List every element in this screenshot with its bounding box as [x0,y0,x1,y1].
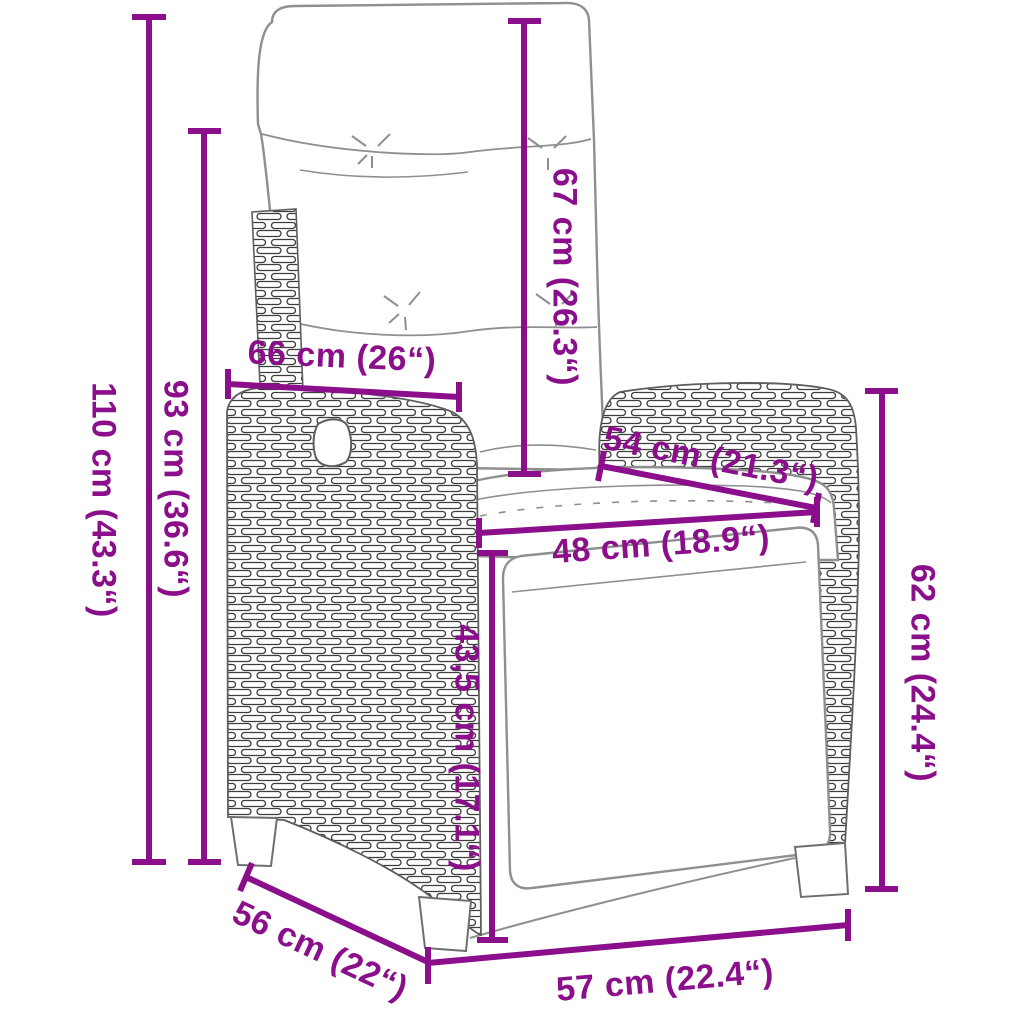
dimension-diagram: 110 cm (43.3“) 93 cm (36.6“) 66 cm (26“)… [0,0,1024,1024]
chair-illustration [0,0,1024,1024]
dim-label-cushion-back-height: 67 cm (26.3“) [545,168,584,386]
recline-handle [314,419,352,466]
footrest-panel-outline [503,528,830,889]
dim-label-backrest-height: 93 cm (36.6“) [156,380,195,598]
dim-label-armrest-height: 62 cm (24.4“) [903,564,942,782]
dim-label-seat-height: 43,5 cm (17.1“) [447,624,486,872]
dim-label-backrest-width: 66 cm (26“) [247,333,437,380]
front-right-foot [795,843,848,897]
rear-left-foot [231,817,277,866]
dim-line-armrest-height [865,391,898,889]
front-left-foot [419,897,471,951]
dim-label-total-height: 110 cm (43.3“) [84,382,123,618]
footrest-panel [470,528,830,938]
